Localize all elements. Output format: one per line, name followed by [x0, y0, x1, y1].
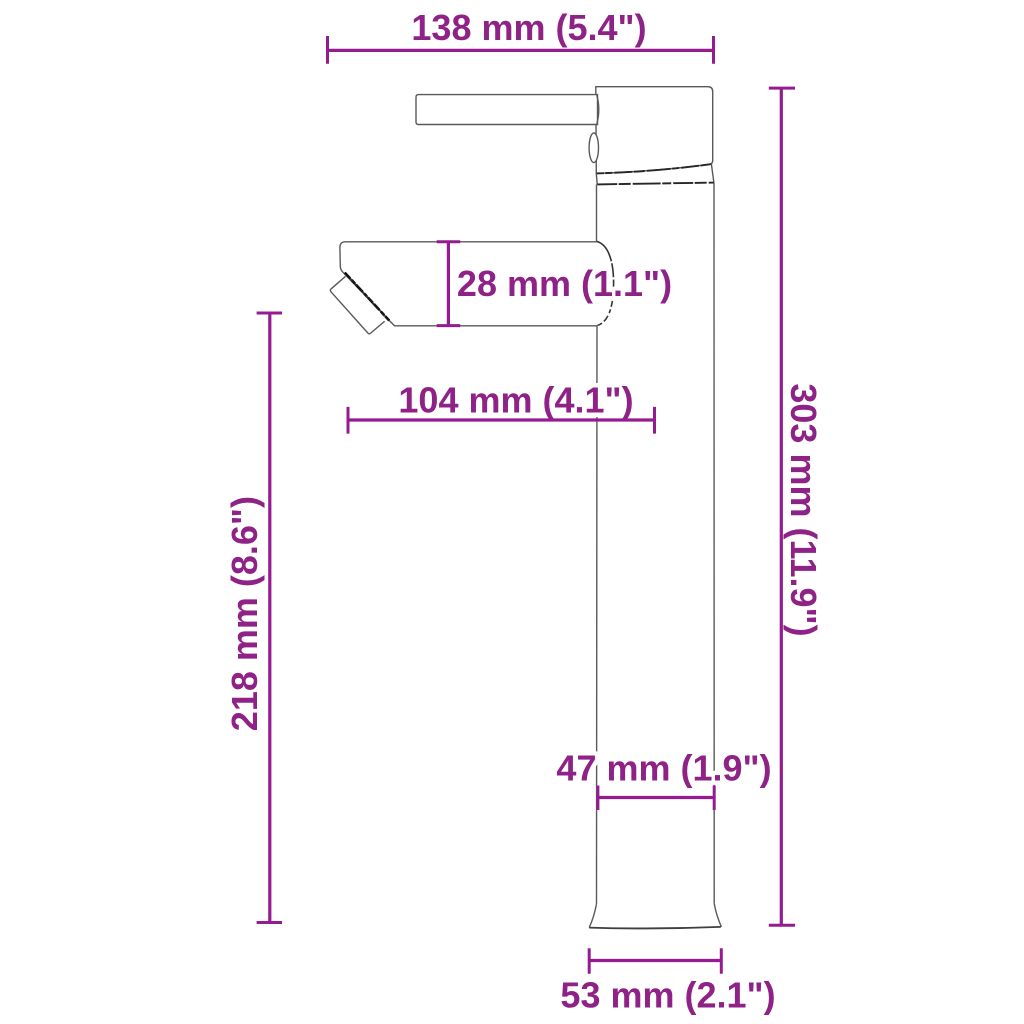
svg-text:104 mm (4.1"): 104 mm (4.1")	[398, 380, 633, 421]
svg-text:28 mm (1.1"): 28 mm (1.1")	[457, 263, 672, 304]
svg-text:218 mm (8.6"): 218 mm (8.6")	[224, 496, 265, 731]
svg-text:47 mm (1.9"): 47 mm (1.9")	[556, 748, 771, 789]
svg-text:53 mm (2.1"): 53 mm (2.1")	[560, 975, 775, 1016]
svg-text:303 mm (11.9"): 303 mm (11.9")	[783, 383, 824, 636]
svg-text:138 mm (5.4"): 138 mm (5.4")	[411, 7, 646, 48]
